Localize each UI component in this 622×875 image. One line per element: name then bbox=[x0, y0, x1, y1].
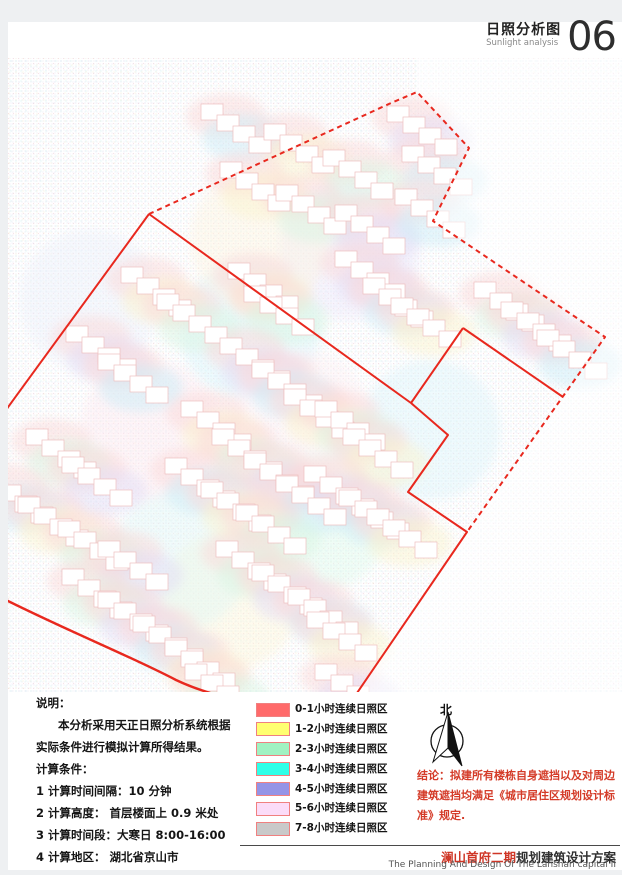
legend-row: 1-2小时连续日照区 bbox=[256, 723, 387, 736]
legend-label: 7-8小时连续日照区 bbox=[295, 822, 387, 835]
legend-swatch bbox=[256, 722, 290, 736]
compass-north-label: 北 bbox=[440, 701, 452, 718]
legend-row: 2-3小时连续日照区 bbox=[256, 743, 387, 756]
legend-label: 5-6小时连续日照区 bbox=[295, 802, 387, 815]
project-title-en: The Planning And Design Of The Lanshan c… bbox=[389, 860, 616, 870]
legend-label: 4-5小时连续日照区 bbox=[295, 783, 387, 796]
notes-line: 2 计算高度： 首层楼面上 0.9 米处 bbox=[36, 802, 264, 824]
legend-row: 5-6小时连续日照区 bbox=[256, 802, 387, 815]
legend-label: 2-3小时连续日照区 bbox=[295, 743, 387, 756]
notes-line: 4 计算地区： 湖北省京山市 bbox=[36, 846, 264, 868]
legend-swatch bbox=[256, 703, 290, 717]
legend-row: 0-1小时连续日照区 bbox=[256, 703, 387, 716]
sheet-number: 06 bbox=[567, 18, 616, 56]
legend-row: 7-8小时连续日照区 bbox=[256, 822, 387, 835]
legend-swatch bbox=[256, 762, 290, 776]
notes-line: 实际条件进行模拟计算所得结果。 bbox=[36, 736, 264, 758]
sheet-title-cn: 日照分析图 bbox=[486, 22, 561, 38]
legend-label: 0-1小时连续日照区 bbox=[295, 703, 387, 716]
notes-line: 3 计算时间段：大寒日 8:00-16:00 bbox=[36, 824, 264, 846]
sheet-title-en: Sunlight analysis bbox=[486, 38, 561, 49]
drawing-sheet: 日照分析图 Sunlight analysis 06 说明： 本分析采用天正日照… bbox=[0, 0, 622, 875]
legend-swatch bbox=[256, 742, 290, 756]
footer-rule bbox=[240, 845, 620, 846]
legend-swatch bbox=[256, 822, 290, 836]
notes-heading: 说明： bbox=[36, 692, 264, 714]
sunlight-legend: 0-1小时连续日照区 1-2小时连续日照区 2-3小时连续日照区 3-4小时连续… bbox=[256, 703, 387, 842]
legend-label: 3-4小时连续日照区 bbox=[295, 763, 387, 776]
conclusion-text: 结论：拟建所有楼栋自身遮挡以及对周边建筑遮挡均满足《城市居住区规划设计标准》规定… bbox=[417, 766, 620, 826]
notes-line: 1 计算时间间隔：10 分钟 bbox=[36, 780, 264, 802]
legend-label: 1-2小时连续日照区 bbox=[295, 723, 387, 736]
legend-swatch bbox=[256, 782, 290, 796]
legend-row: 4-5小时连续日照区 bbox=[256, 783, 387, 796]
notes-block: 说明： 本分析采用天正日照分析系统根据 实际条件进行模拟计算所得结果。 计算条件… bbox=[36, 692, 264, 868]
legend-swatch bbox=[256, 802, 290, 816]
sheet-header: 日照分析图 Sunlight analysis 06 bbox=[486, 18, 616, 56]
legend-row: 3-4小时连续日照区 bbox=[256, 763, 387, 776]
compass-icon bbox=[431, 712, 463, 766]
map-content bbox=[0, 58, 622, 722]
notes-line: 本分析采用天正日照分析系统根据 bbox=[36, 714, 264, 736]
notes-line: 计算条件： bbox=[36, 758, 264, 780]
